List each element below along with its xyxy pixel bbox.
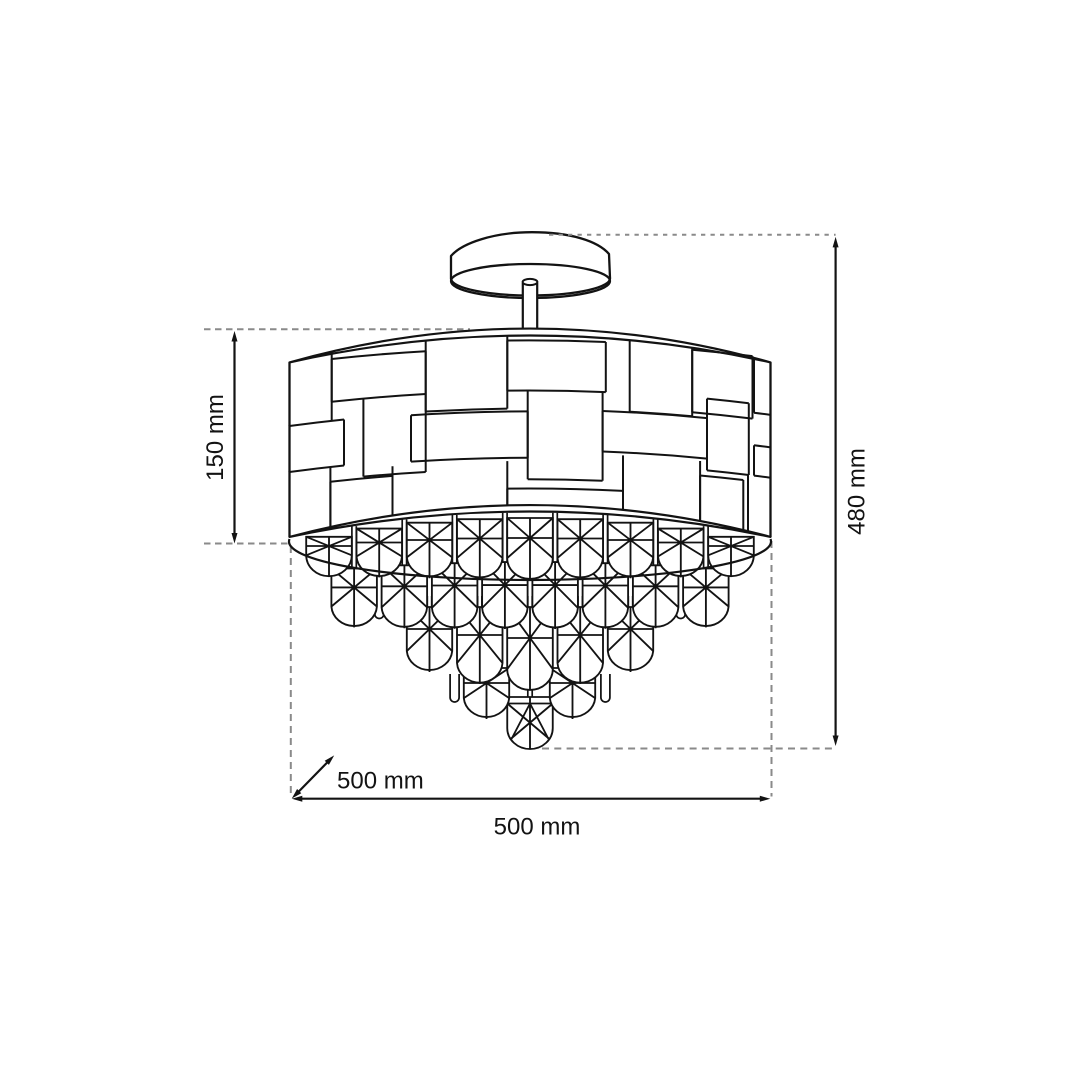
svg-text:500 mm: 500 mm (494, 813, 581, 840)
svg-text:500 mm: 500 mm (337, 767, 424, 794)
svg-text:150 mm: 150 mm (202, 394, 229, 481)
svg-text:480 mm: 480 mm (844, 448, 871, 535)
